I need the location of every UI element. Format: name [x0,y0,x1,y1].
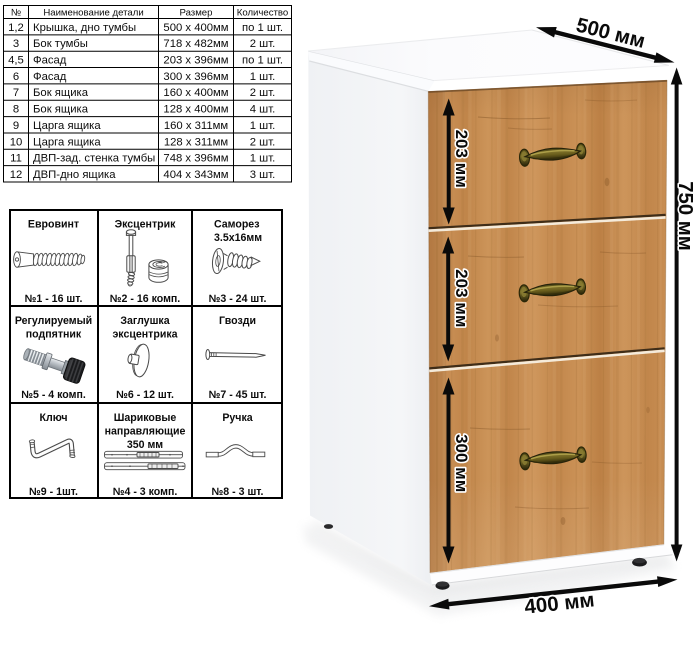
svg-text:Ключ: Ключ [40,412,68,424]
svg-text:№9 - 1шт.: №9 - 1шт. [29,486,78,498]
svg-text:Ручка: Ручка [222,412,252,424]
svg-text:Гвозди: Гвозди [219,315,256,327]
svg-text:по 1 шт.: по 1 шт. [242,22,283,34]
svg-text:3: 3 [13,38,19,50]
svg-text:6: 6 [13,71,19,83]
svg-text:направляющие: направляющие [105,426,186,438]
svg-text:2 шт.: 2 шт. [250,136,276,148]
svg-text:по 1 шт.: по 1 шт. [242,55,283,67]
svg-text:№5 - 4 комп.: №5 - 4 комп. [21,389,86,401]
svg-text:Царга ящика: Царга ящика [33,136,101,148]
svg-text:подпятник: подпятник [26,329,82,341]
svg-text:2 шт.: 2 шт. [250,38,276,50]
svg-text:Количество: Количество [237,7,289,18]
svg-text:7: 7 [13,87,19,99]
svg-text:Бок ящика: Бок ящика [33,104,89,116]
svg-text:1 шт.: 1 шт. [250,71,276,83]
svg-text:ДВП-дно ящика: ДВП-дно ящика [33,169,116,181]
svg-text:203 х 396мм: 203 х 396мм [163,55,228,67]
svg-text:1 шт.: 1 шт. [250,153,276,165]
svg-text:№: № [11,7,21,18]
svg-text:748 х 396мм: 748 х 396мм [163,153,228,165]
svg-text:9: 9 [13,120,19,132]
svg-text:№4 - 3 комп.: №4 - 3 комп. [113,486,178,498]
svg-text:300 х 396мм: 300 х 396мм [163,71,228,83]
svg-text:ДВП-зад. стенка тумбы: ДВП-зад. стенка тумбы [33,153,155,165]
svg-text:1,2: 1,2 [8,22,24,34]
svg-text:11: 11 [10,153,22,165]
svg-text:Бок тумбы: Бок тумбы [33,38,88,50]
svg-text:128 х 400мм: 128 х 400мм [163,104,228,116]
svg-text:203 мм: 203 мм [452,130,471,188]
svg-text:Заглушка: Заглушка [120,315,169,327]
svg-text:718 х 482мм: 718 х 482мм [163,38,228,50]
svg-text:12: 12 [10,169,23,181]
svg-text:№8 - 3 шт.: №8 - 3 шт. [212,486,264,498]
svg-text:300 мм: 300 мм [452,434,471,492]
svg-text:№3 - 24 шт.: №3 - 24 шт. [209,293,267,305]
svg-text:Эксцентрик: Эксцентрик [115,219,177,231]
svg-text:3 шт.: 3 шт. [250,169,276,181]
svg-text:Шариковые: Шариковые [114,412,177,424]
svg-text:3.5х16мм: 3.5х16мм [214,232,262,244]
svg-text:№2 - 16 комп.: №2 - 16 комп. [110,293,181,305]
svg-text:404 х 343мм: 404 х 343мм [163,169,228,181]
svg-text:10: 10 [10,136,23,148]
svg-text:160 х 311мм: 160 х 311мм [164,120,228,132]
svg-text:эксцентрика: эксцентрика [112,329,177,341]
svg-text:Регулируемый: Регулируемый [15,315,92,327]
svg-text:Фасад: Фасад [33,55,67,67]
svg-text:Царга ящика: Царга ящика [33,120,101,132]
svg-text:203 мм: 203 мм [452,269,471,327]
svg-text:4 шт.: 4 шт. [250,104,276,116]
svg-text:2 шт.: 2 шт. [250,87,276,99]
svg-text:350 мм: 350 мм [127,439,163,451]
svg-text:Размер: Размер [180,7,213,18]
svg-text:750 мм: 750 мм [674,181,696,250]
svg-text:4,5: 4,5 [8,55,24,67]
svg-text:500 х 400мм: 500 х 400мм [163,22,228,34]
svg-text:Фасад: Фасад [33,71,67,83]
svg-text:Крышка, дно тумбы: Крышка, дно тумбы [33,22,136,34]
svg-text:№1 - 16 шт.: №1 - 16 шт. [25,293,83,305]
svg-text:1 шт.: 1 шт. [250,120,276,132]
svg-text:№7 - 45 шт.: №7 - 45 шт. [209,389,267,401]
svg-text:8: 8 [13,104,19,116]
svg-text:Наименование детали: Наименование детали [43,7,143,18]
svg-text:Евровинт: Евровинт [28,219,79,231]
svg-text:Бок ящика: Бок ящика [33,87,89,99]
svg-text:№6 - 12 шт.: №6 - 12 шт. [116,389,174,401]
svg-text:128 х 311мм: 128 х 311мм [164,136,228,148]
svg-text:160 х 400мм: 160 х 400мм [163,87,228,99]
svg-text:Саморез: Саморез [214,219,259,231]
